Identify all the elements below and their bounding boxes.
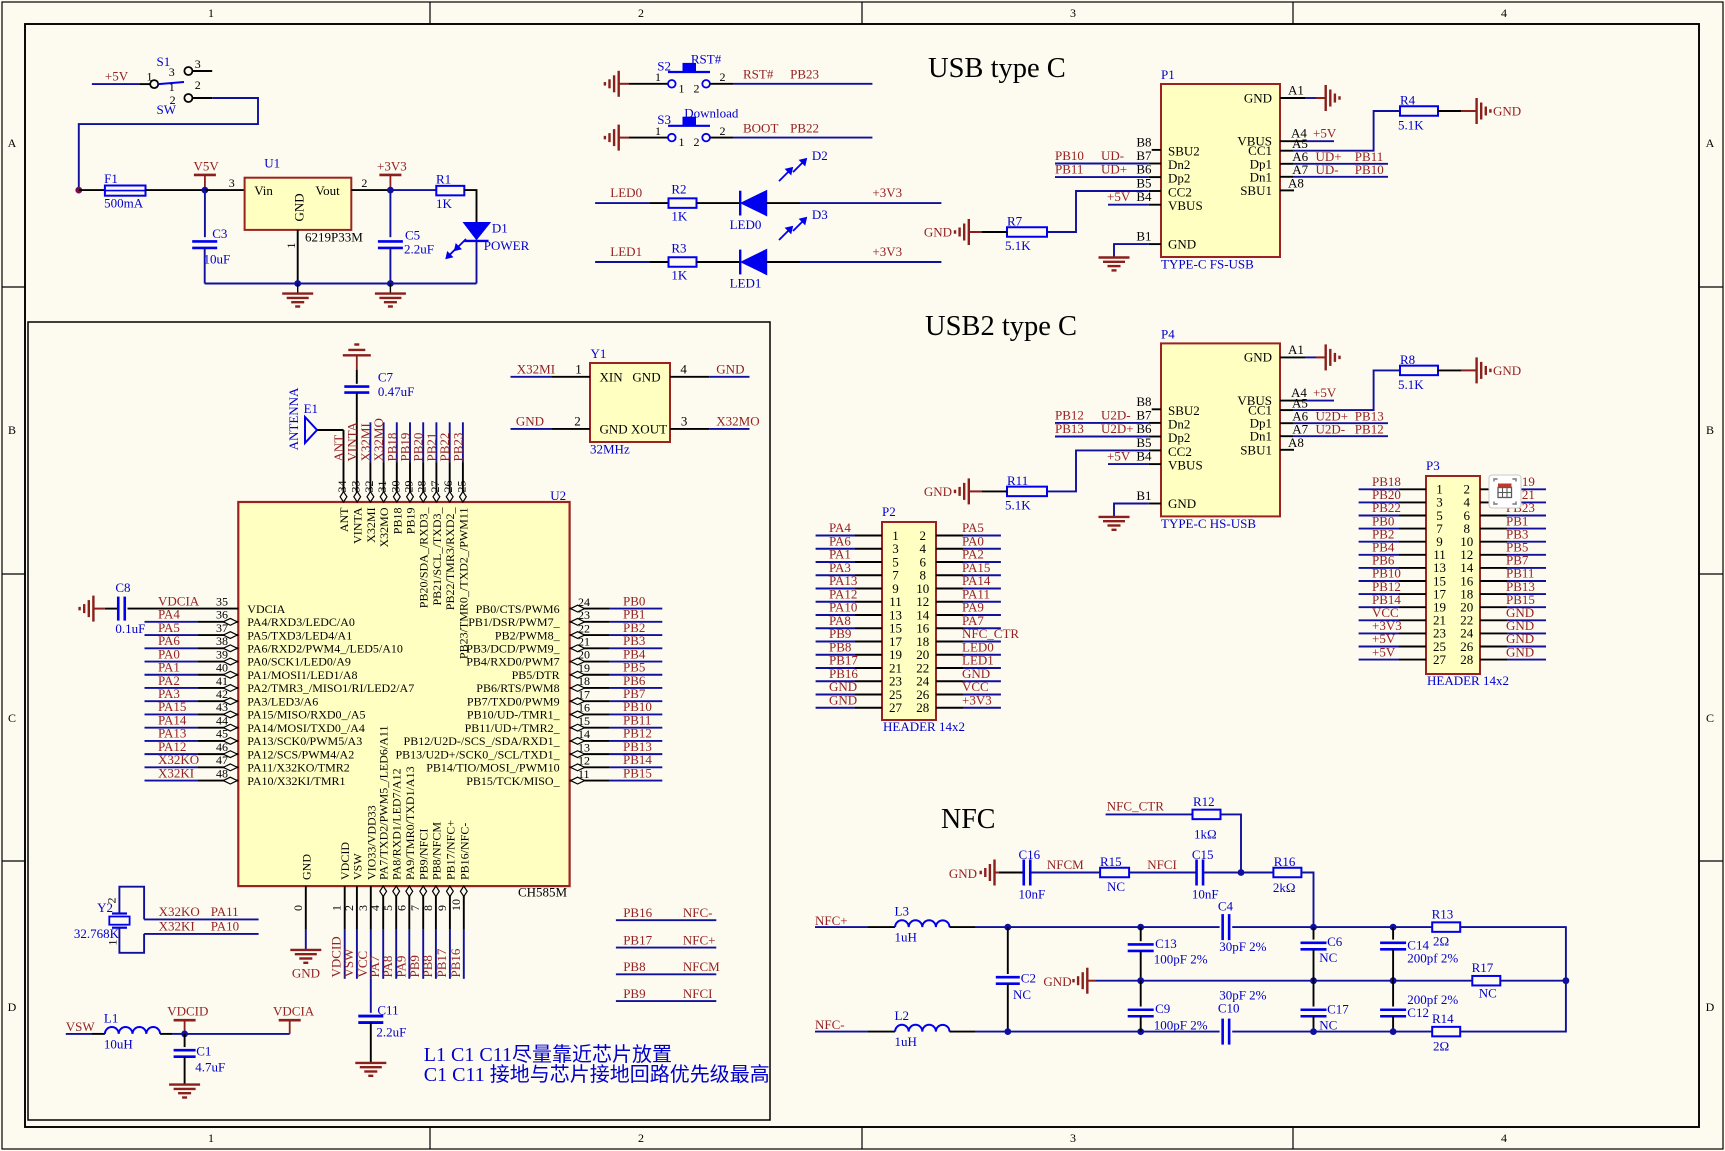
svg-text:A: A — [1706, 136, 1715, 150]
svg-text:2: 2 — [720, 124, 726, 138]
svg-text:LED0: LED0 — [730, 217, 762, 232]
svg-text:VBUS: VBUS — [1168, 198, 1203, 213]
svg-text:10: 10 — [449, 899, 463, 911]
svg-text:XIN: XIN — [600, 370, 624, 385]
svg-text:B6: B6 — [1136, 421, 1152, 436]
svg-text:PB8: PB8 — [420, 955, 435, 977]
svg-text:C5: C5 — [405, 228, 420, 243]
svg-text:GND: GND — [1168, 236, 1196, 251]
svg-text:15: 15 — [578, 714, 590, 728]
svg-text:A1: A1 — [1288, 342, 1304, 357]
svg-text:A8: A8 — [1288, 176, 1304, 191]
svg-text:F1: F1 — [104, 171, 118, 186]
svg-text:LED1: LED1 — [610, 244, 642, 259]
svg-text:14: 14 — [578, 727, 590, 741]
svg-text:VSW: VSW — [66, 1019, 96, 1034]
svg-text:32.768K: 32.768K — [74, 926, 120, 941]
svg-text:24: 24 — [578, 595, 590, 609]
svg-text:19: 19 — [578, 661, 590, 675]
svg-text:1: 1 — [679, 81, 685, 95]
svg-text:PB23/TMR0_/TXD2_/PWM11: PB23/TMR0_/TXD2_/PWM11 — [456, 508, 470, 660]
svg-text:29: 29 — [402, 481, 416, 493]
svg-text:B4: B4 — [1136, 449, 1152, 464]
svg-text:S2: S2 — [657, 58, 671, 73]
svg-text:PB5/DTR: PB5/DTR — [512, 668, 560, 682]
svg-text:PB6/RTS/PWM8: PB6/RTS/PWM8 — [476, 681, 559, 695]
svg-text:2Ω: 2Ω — [1433, 934, 1449, 949]
svg-text:R15: R15 — [1100, 854, 1122, 869]
svg-text:PA3/LED3/A6: PA3/LED3/A6 — [247, 694, 318, 708]
svg-text:ANTENNA: ANTENNA — [286, 387, 301, 450]
svg-text:47: 47 — [216, 753, 228, 767]
svg-text:31: 31 — [375, 481, 389, 493]
svg-text:C16: C16 — [1019, 847, 1041, 862]
svg-text:PB2/PWM8_: PB2/PWM8_ — [495, 628, 561, 642]
svg-text:4: 4 — [1501, 6, 1507, 20]
svg-text:VDCID: VDCID — [167, 1004, 208, 1019]
svg-text:NFC+: NFC+ — [815, 913, 848, 928]
svg-text:C6: C6 — [1327, 934, 1343, 949]
svg-text:4: 4 — [368, 905, 382, 911]
svg-text:20: 20 — [578, 648, 590, 662]
svg-text:1uH: 1uH — [895, 1034, 917, 1049]
svg-text:PB11/UD+/TMR2_: PB11/UD+/TMR2_ — [465, 721, 561, 735]
svg-text:1uH: 1uH — [895, 930, 917, 945]
svg-text:PB18: PB18 — [390, 508, 404, 535]
svg-text:L1 C1 C11尽量靠近芯片放置: L1 C1 C11尽量靠近芯片放置 — [424, 1043, 672, 1066]
svg-text:PB12: PB12 — [1355, 421, 1384, 436]
svg-text:PA7/TXD2/PWM5_/LED6/A11: PA7/TXD2/PWM5_/LED6/A11 — [377, 726, 391, 880]
svg-text:+5V: +5V — [1372, 644, 1396, 659]
svg-text:4.7uF: 4.7uF — [195, 1060, 225, 1075]
svg-text:1: 1 — [679, 135, 685, 149]
svg-text:PB23: PB23 — [790, 67, 819, 82]
svg-text:3: 3 — [1070, 1131, 1076, 1145]
svg-text:PA11/X32KO/TMR2: PA11/X32KO/TMR2 — [247, 761, 349, 775]
svg-text:TYPE-C HS-USB: TYPE-C HS-USB — [1161, 516, 1256, 531]
svg-text:RST#: RST# — [743, 67, 774, 82]
svg-text:1: 1 — [284, 243, 298, 249]
svg-text:A1: A1 — [1288, 83, 1304, 98]
svg-text:10nF: 10nF — [1192, 887, 1219, 902]
svg-text:12: 12 — [578, 754, 590, 768]
svg-text:33: 33 — [349, 481, 363, 493]
svg-text:3: 3 — [195, 57, 201, 71]
svg-text:200pf 2%: 200pf 2% — [1407, 992, 1458, 1007]
svg-text:UD-: UD- — [1316, 162, 1339, 177]
svg-text:PB10: PB10 — [1355, 162, 1384, 177]
svg-text:SBU1: SBU1 — [1240, 442, 1272, 457]
svg-text:R1: R1 — [436, 172, 451, 187]
svg-text:A: A — [8, 136, 17, 150]
svg-text:L2: L2 — [895, 1008, 909, 1023]
svg-text:GND: GND — [829, 692, 857, 707]
svg-text:VDCIA: VDCIA — [247, 602, 285, 616]
svg-text:NC: NC — [1013, 987, 1031, 1002]
svg-text:PB14/TIO/MOSI_/PWM10: PB14/TIO/MOSI_/PWM10 — [426, 761, 559, 775]
svg-text:D1: D1 — [492, 221, 508, 236]
svg-text:+5V: +5V — [1313, 385, 1337, 400]
svg-text:42: 42 — [216, 687, 228, 701]
svg-text:5.1K: 5.1K — [1398, 377, 1424, 392]
svg-text:BOOT: BOOT — [743, 121, 778, 136]
svg-text:GND: GND — [516, 413, 544, 428]
svg-text:NFCI: NFCI — [683, 986, 713, 1001]
svg-text:C17: C17 — [1327, 1002, 1349, 1017]
svg-text:100pF 2%: 100pF 2% — [1154, 952, 1208, 967]
svg-text:POWER: POWER — [484, 238, 530, 253]
svg-text:C3: C3 — [212, 226, 227, 241]
svg-text:C8: C8 — [115, 580, 130, 595]
svg-text:R11: R11 — [1007, 473, 1028, 488]
svg-text:PB19: PB19 — [404, 508, 418, 535]
svg-text:25: 25 — [454, 481, 468, 493]
svg-text:C1: C1 — [196, 1044, 211, 1059]
svg-text:GND: GND — [949, 866, 977, 881]
svg-text:0: 0 — [291, 905, 305, 911]
svg-text:P1: P1 — [1161, 67, 1175, 82]
svg-text:NC: NC — [1319, 950, 1337, 965]
svg-text:Vin: Vin — [254, 183, 273, 198]
svg-text:R13: R13 — [1432, 907, 1454, 922]
svg-text:22: 22 — [578, 621, 590, 635]
svg-text:D: D — [1706, 1000, 1715, 1014]
svg-text:2: 2 — [638, 1131, 644, 1145]
svg-text:39: 39 — [216, 647, 228, 661]
svg-text:34: 34 — [335, 481, 349, 493]
svg-text:HEADER 14x2: HEADER 14x2 — [1427, 673, 1509, 688]
svg-text:PB8: PB8 — [623, 959, 645, 974]
svg-text:PB16/NFC-: PB16/NFC- — [457, 823, 471, 880]
svg-text:C4: C4 — [1218, 899, 1234, 914]
svg-text:Y1: Y1 — [591, 346, 607, 361]
svg-text:V5V: V5V — [194, 158, 220, 173]
svg-text:18: 18 — [578, 674, 590, 688]
svg-text:GND: GND — [1244, 350, 1272, 365]
svg-text:GND: GND — [632, 370, 660, 385]
svg-text:PB4/RXD0/PWM7: PB4/RXD0/PWM7 — [466, 655, 559, 669]
svg-text:X32MI: X32MI — [364, 508, 378, 543]
svg-text:27: 27 — [1433, 652, 1447, 667]
svg-text:GND: GND — [1506, 644, 1534, 659]
svg-text:Vout: Vout — [315, 183, 340, 198]
svg-text:VBUS: VBUS — [1168, 458, 1203, 473]
svg-text:26: 26 — [441, 481, 455, 493]
svg-text:PB17: PB17 — [434, 948, 449, 977]
svg-text:PA9/TMR0/TXD1/A13: PA9/TMR0/TXD1/A13 — [403, 766, 417, 880]
svg-text:PA2/TMR3_/MISO1/RI/LED2/A7: PA2/TMR3_/MISO1/RI/LED2/A7 — [247, 681, 414, 695]
svg-text:2: 2 — [361, 176, 367, 190]
svg-text:+3V3: +3V3 — [962, 692, 992, 707]
svg-text:PB16: PB16 — [623, 905, 652, 920]
svg-text:41: 41 — [216, 674, 228, 688]
svg-text:PA0/SCK1/LED0/A9: PA0/SCK1/LED0/A9 — [247, 655, 351, 669]
svg-text:40: 40 — [216, 661, 228, 675]
svg-text:1K: 1K — [671, 209, 688, 224]
svg-text:GND XOUT: GND XOUT — [600, 422, 668, 437]
svg-text:2: 2 — [720, 70, 726, 84]
svg-text:GND: GND — [1043, 974, 1071, 989]
svg-text:10nF: 10nF — [1019, 887, 1046, 902]
svg-text:46: 46 — [216, 740, 228, 754]
svg-text:PB15/TCK/MISO_: PB15/TCK/MISO_ — [466, 774, 560, 788]
svg-text:B6: B6 — [1136, 162, 1152, 177]
svg-text:3: 3 — [229, 176, 235, 190]
svg-text:C15: C15 — [1192, 847, 1214, 862]
svg-text:28: 28 — [415, 481, 429, 493]
svg-text:GND: GND — [924, 225, 952, 240]
svg-text:1: 1 — [208, 6, 214, 20]
svg-text:X32MO: X32MO — [377, 507, 391, 547]
svg-text:R17: R17 — [1472, 960, 1494, 975]
svg-text:NFC-: NFC- — [683, 905, 713, 920]
svg-text:GND: GND — [1244, 90, 1272, 105]
svg-text:R14: R14 — [1432, 1011, 1454, 1026]
svg-text:PB20/SDA_/RXD3_: PB20/SDA_/RXD3_ — [417, 507, 431, 609]
svg-text:PB17/NFC+: PB17/NFC+ — [443, 820, 457, 880]
svg-text:PB13: PB13 — [1055, 421, 1084, 436]
svg-text:B4: B4 — [1136, 189, 1152, 204]
svg-text:X32KI: X32KI — [158, 765, 194, 780]
svg-text:43: 43 — [216, 700, 228, 714]
svg-text:R3: R3 — [671, 241, 686, 256]
svg-text:38: 38 — [216, 634, 228, 648]
svg-text:X32MI: X32MI — [517, 361, 555, 376]
svg-text:PB22: PB22 — [790, 121, 819, 136]
svg-text:PA11: PA11 — [211, 904, 239, 919]
svg-text:PB1/DSR/PWM7_: PB1/DSR/PWM7_ — [468, 615, 560, 629]
svg-text:C9: C9 — [1155, 1001, 1170, 1016]
svg-text:100pF 2%: 100pF 2% — [1154, 1018, 1208, 1033]
svg-text:B: B — [8, 423, 16, 437]
svg-text:2: 2 — [694, 135, 700, 149]
svg-text:23: 23 — [578, 608, 590, 622]
svg-text:VDCIA: VDCIA — [273, 1004, 315, 1019]
svg-text:P2: P2 — [882, 504, 896, 519]
svg-text:X32KO: X32KO — [159, 904, 200, 919]
svg-text:ANT: ANT — [337, 507, 351, 532]
svg-text:C13: C13 — [1155, 936, 1177, 951]
svg-text:NFCI: NFCI — [1147, 857, 1177, 872]
svg-text:NFC: NFC — [941, 804, 995, 835]
svg-text:NC: NC — [1479, 986, 1497, 1001]
svg-text:3: 3 — [1070, 6, 1076, 20]
svg-text:+5V: +5V — [1107, 449, 1131, 464]
svg-text:R16: R16 — [1274, 854, 1296, 869]
svg-text:PA14/MOSI/TXD0_/A4: PA14/MOSI/TXD0_/A4 — [247, 721, 365, 735]
svg-text:R2: R2 — [671, 182, 686, 197]
svg-text:+3V3: +3V3 — [872, 244, 902, 259]
svg-text:5.1K: 5.1K — [1005, 497, 1031, 512]
svg-text:3: 3 — [169, 65, 175, 79]
svg-text:0.47uF: 0.47uF — [378, 384, 414, 399]
svg-text:LED0: LED0 — [610, 185, 642, 200]
svg-text:R8: R8 — [1400, 352, 1415, 367]
svg-text:+5V: +5V — [1313, 126, 1337, 141]
svg-text:48: 48 — [216, 766, 228, 780]
svg-text:PB15: PB15 — [623, 765, 652, 780]
svg-text:1: 1 — [106, 940, 120, 946]
svg-text:PB21/SCL_/TXD3_: PB21/SCL_/TXD3_ — [430, 507, 444, 606]
svg-text:6219P33M: 6219P33M — [305, 230, 363, 245]
svg-text:30pF 2%: 30pF 2% — [1219, 988, 1266, 1003]
svg-text:PA10/X32KI/TMR1: PA10/X32KI/TMR1 — [247, 774, 345, 788]
svg-text:SW: SW — [157, 102, 177, 117]
svg-text:2.2uF: 2.2uF — [404, 242, 434, 257]
svg-text:Dp2: Dp2 — [1168, 171, 1190, 186]
svg-text:36: 36 — [216, 608, 228, 622]
svg-text:28: 28 — [916, 700, 929, 715]
svg-text:2: 2 — [574, 413, 581, 428]
svg-text:B1: B1 — [1136, 229, 1151, 244]
svg-text:C7: C7 — [378, 370, 394, 385]
svg-text:2: 2 — [694, 81, 700, 95]
svg-text:NC: NC — [1107, 879, 1125, 894]
svg-text:B: B — [1706, 423, 1714, 437]
svg-text:9: 9 — [435, 905, 449, 911]
svg-text:5: 5 — [381, 905, 395, 911]
svg-text:17: 17 — [578, 687, 590, 701]
svg-text:35: 35 — [216, 594, 228, 608]
svg-text:C10: C10 — [1218, 1001, 1240, 1016]
svg-text:C1 C11 接地与芯片接地回路优先级最高: C1 C11 接地与芯片接地回路优先级最高 — [424, 1063, 770, 1086]
svg-text:PB7/TXD0/PWM9: PB7/TXD0/PWM9 — [467, 694, 560, 708]
svg-text:2: 2 — [342, 905, 356, 911]
svg-text:NFCM: NFCM — [683, 959, 720, 974]
svg-text:1: 1 — [575, 361, 582, 376]
svg-text:PB10/UD-/TMR1_: PB10/UD-/TMR1_ — [467, 708, 561, 722]
svg-text:PB0/CTS/PWM6: PB0/CTS/PWM6 — [476, 602, 560, 616]
svg-text:NFC-: NFC- — [815, 1017, 845, 1032]
svg-text:GND: GND — [924, 484, 952, 499]
svg-text:R7: R7 — [1007, 214, 1023, 229]
svg-text:PA8/RXD1/LED7/A12: PA8/RXD1/LED7/A12 — [390, 768, 404, 880]
svg-text:PB11: PB11 — [1055, 162, 1083, 177]
svg-text:2Ω: 2Ω — [1433, 1039, 1449, 1054]
svg-text:PB23: PB23 — [450, 433, 465, 462]
svg-text:L3: L3 — [895, 904, 909, 919]
svg-text:C: C — [8, 711, 16, 725]
svg-text:+3V3: +3V3 — [872, 185, 902, 200]
svg-text:B1: B1 — [1136, 488, 1151, 503]
svg-text:TYPE-C FS-USB: TYPE-C FS-USB — [1161, 257, 1254, 272]
svg-text:PA10: PA10 — [211, 918, 239, 933]
svg-text:2: 2 — [195, 78, 201, 92]
svg-text:PA4/RXD3/LEDC/A0: PA4/RXD3/LEDC/A0 — [247, 615, 355, 629]
svg-text:GND: GND — [1493, 363, 1521, 378]
svg-text:32: 32 — [362, 481, 376, 493]
svg-text:37: 37 — [216, 621, 228, 635]
svg-text:44: 44 — [216, 713, 228, 727]
svg-text:U2: U2 — [550, 488, 566, 503]
svg-text:GND: GND — [292, 966, 320, 981]
svg-text:+5V: +5V — [1107, 189, 1131, 204]
svg-text:PA13/SCK0/PWM5/A3: PA13/SCK0/PWM5/A3 — [247, 734, 362, 748]
svg-text:10uF: 10uF — [204, 252, 231, 267]
svg-text:200pf 2%: 200pf 2% — [1407, 951, 1458, 966]
svg-text:+5V: +5V — [105, 69, 129, 84]
svg-text:10uH: 10uH — [104, 1037, 133, 1052]
svg-text:L1: L1 — [104, 1011, 118, 1026]
svg-text:C12: C12 — [1407, 1005, 1429, 1020]
svg-text:PA12/SCS/PWM4/A2: PA12/SCS/PWM4/A2 — [247, 747, 354, 761]
svg-text:NFCM: NFCM — [1047, 857, 1084, 872]
svg-text:D: D — [8, 1000, 17, 1014]
svg-text:GND: GND — [292, 193, 307, 221]
svg-text:UD+: UD+ — [1101, 162, 1127, 177]
svg-text:PB17: PB17 — [623, 932, 652, 947]
svg-text:PB8/NFCM: PB8/NFCM — [429, 822, 443, 880]
svg-text:30: 30 — [388, 481, 402, 493]
svg-text:PA15/MISO/RXD0_/A5: PA15/MISO/RXD0_/A5 — [247, 708, 365, 722]
svg-text:X32KI: X32KI — [159, 918, 195, 933]
svg-text:D2: D2 — [812, 148, 828, 163]
svg-text:2: 2 — [105, 898, 119, 904]
svg-text:0.1uF: 0.1uF — [115, 621, 145, 636]
svg-text:GND: GND — [1493, 104, 1521, 119]
svg-text:5.1K: 5.1K — [1398, 118, 1424, 133]
svg-text:R4: R4 — [1400, 93, 1416, 108]
svg-text:+3V3: +3V3 — [377, 158, 407, 173]
svg-text:P4: P4 — [1161, 326, 1175, 341]
svg-text:2kΩ: 2kΩ — [1273, 880, 1296, 895]
svg-text:U2D+: U2D+ — [1101, 421, 1134, 436]
svg-text:PB9: PB9 — [623, 986, 645, 1001]
svg-text:PB22/TMR3/RXD2_: PB22/TMR3/RXD2_ — [443, 507, 457, 611]
svg-text:VSW: VSW — [350, 853, 364, 880]
svg-text:27: 27 — [428, 481, 442, 493]
svg-text:PA9: PA9 — [393, 956, 408, 978]
svg-text:PB13/U2D+/SCK0_/SCL/TXD1_: PB13/U2D+/SCK0_/SCL/TXD1_ — [395, 747, 560, 761]
svg-text:27: 27 — [889, 700, 903, 715]
svg-text:PA1/MOSI1/LED1/A8: PA1/MOSI1/LED1/A8 — [247, 668, 357, 682]
svg-text:2.2uF: 2.2uF — [376, 1025, 406, 1040]
svg-text:C2: C2 — [1021, 971, 1036, 986]
svg-text:U2D-: U2D- — [1316, 421, 1346, 436]
svg-text:PA6/RXD2/PWM4_/LED5/A10: PA6/RXD2/PWM4_/LED5/A10 — [247, 641, 403, 655]
svg-text:X32MO: X32MO — [716, 413, 759, 428]
svg-text:4: 4 — [680, 361, 687, 376]
svg-text:USB type C: USB type C — [928, 53, 1066, 84]
svg-text:R12: R12 — [1193, 794, 1215, 809]
svg-text:11: 11 — [578, 767, 590, 781]
svg-text:USB2 type C: USB2 type C — [925, 311, 1077, 342]
svg-text:S3: S3 — [657, 112, 671, 127]
svg-text:PB12/U2D-/SCS_/SDA/RXD1_: PB12/U2D-/SCS_/SDA/RXD1_ — [404, 734, 561, 748]
svg-text:PA5/TXD3/LED4/A1: PA5/TXD3/LED4/A1 — [247, 628, 352, 642]
svg-text:NC: NC — [1319, 1018, 1337, 1033]
svg-text:PB16: PB16 — [448, 948, 463, 977]
svg-text:6: 6 — [394, 905, 408, 911]
svg-text:CH585M: CH585M — [518, 885, 568, 900]
svg-text:GND: GND — [716, 361, 744, 376]
svg-text:13: 13 — [578, 740, 590, 754]
svg-text:C: C — [1706, 711, 1714, 725]
svg-text:8: 8 — [421, 905, 435, 911]
svg-text:NFC_CTR: NFC_CTR — [1107, 798, 1164, 813]
svg-text:4: 4 — [1501, 1131, 1507, 1145]
svg-text:21: 21 — [578, 634, 590, 648]
svg-text:1K: 1K — [671, 268, 688, 283]
svg-text:3: 3 — [681, 413, 688, 428]
svg-text:30pF 2%: 30pF 2% — [1219, 939, 1266, 954]
svg-text:VSW: VSW — [341, 948, 356, 978]
svg-text:HEADER 14x2: HEADER 14x2 — [883, 719, 965, 734]
svg-text:32MHz: 32MHz — [590, 442, 630, 457]
svg-text:16: 16 — [578, 701, 590, 715]
svg-text:2: 2 — [638, 6, 644, 20]
svg-text:500mA: 500mA — [104, 196, 144, 211]
